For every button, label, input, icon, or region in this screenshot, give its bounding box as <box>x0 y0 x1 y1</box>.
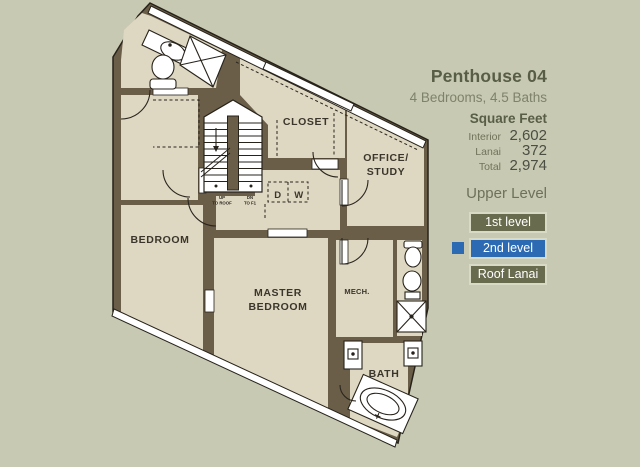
beds-baths-subtitle: 4 Bedrooms, 4.5 Baths <box>410 90 547 105</box>
bedroom-floor <box>121 205 203 350</box>
room-label-bath: BATH <box>369 368 400 380</box>
stat-row-interior: Interior 2,602 <box>468 127 547 142</box>
level-buttons: 1st level 2nd level Roof Lanai <box>469 212 547 290</box>
stat-row-lanai: Lanai 372 <box>468 142 547 157</box>
toilet-icon-powder <box>404 241 422 267</box>
stat-label-total: Total <box>479 161 501 173</box>
stat-value-total: 2,974 <box>501 157 547 174</box>
square-feet-stats: Interior 2,602 Lanai 372 Total 2,974 <box>468 127 547 172</box>
floorplan-page: BEDROOM MASTER BEDROOM CLOSET OFFICE/ ST… <box>0 0 640 467</box>
label-washer: W <box>294 190 304 201</box>
vanity-right <box>404 341 422 366</box>
label-dryer: D <box>274 190 281 201</box>
room-label-office-2: STUDY <box>367 166 406 178</box>
page-title: Penthouse 04 <box>431 66 547 87</box>
room-label-closet: CLOSET <box>283 116 329 128</box>
current-level-label: Upper Level <box>466 185 547 202</box>
stairs <box>201 100 262 192</box>
shower-icon-master <box>397 301 426 332</box>
vanity-left <box>344 341 362 369</box>
room-label-master-2: BEDROOM <box>248 301 307 313</box>
square-feet-heading: Square Feet <box>470 111 547 126</box>
toilet-icon-upper <box>150 55 176 89</box>
stairs-dn-label-2: TO F1 <box>244 201 257 206</box>
room-label-mech: MECH. <box>344 287 369 296</box>
room-label-master-1: MASTER <box>254 287 302 299</box>
stairs-up-label-2: TO ROOF <box>212 201 232 206</box>
stairs-up-label-1: UP <box>219 195 225 200</box>
button-roof-lanai[interactable]: Roof Lanai <box>469 264 547 285</box>
button-1st-level[interactable]: 1st level <box>469 212 547 233</box>
stat-label-lanai: Lanai <box>475 146 501 158</box>
stairs-dn-label-1: DN <box>247 195 253 200</box>
button-2nd-level[interactable]: 2nd level <box>469 238 547 259</box>
active-level-indicator <box>452 242 464 254</box>
stat-label-interior: Interior <box>468 131 501 143</box>
room-label-office-1: OFFICE/ <box>363 152 409 164</box>
sink-icon-powder <box>403 271 421 299</box>
room-label-bedroom: BEDROOM <box>130 234 189 246</box>
stat-row-total: Total 2,974 <box>468 157 547 172</box>
